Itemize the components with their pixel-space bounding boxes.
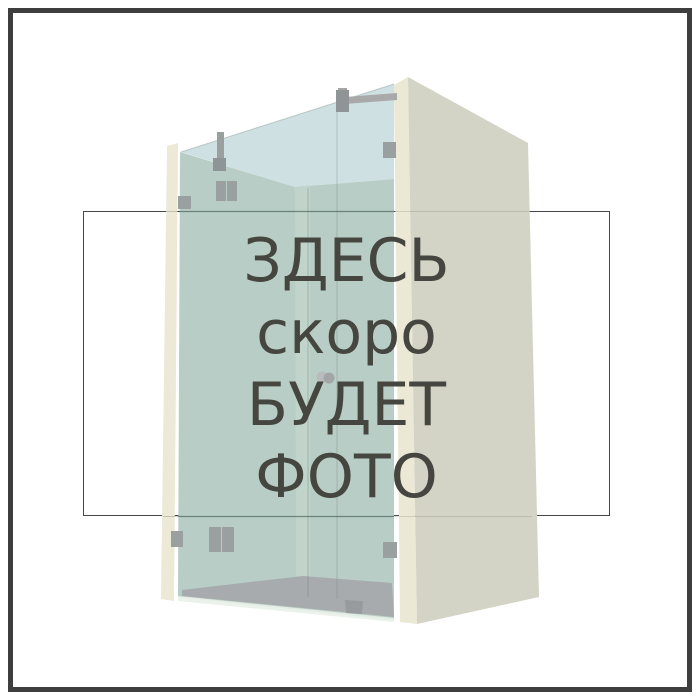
wall-clamp-bottom-right bbox=[383, 542, 397, 558]
wall-clamp-top-right bbox=[383, 142, 396, 158]
double-clamp-top-b bbox=[227, 181, 237, 201]
double-clamp-bottom-b bbox=[222, 527, 234, 552]
placeholder-line: БУДЕТ bbox=[83, 369, 610, 441]
post-clamp bbox=[213, 158, 226, 171]
placeholder-text: ЗДЕСЬ скоро БУДЕТ ФОТО bbox=[83, 225, 610, 513]
placeholder-line: ЗДЕСЬ bbox=[83, 225, 610, 297]
placeholder-line: ФОТО bbox=[83, 441, 610, 513]
wall-clamp-bottom-left bbox=[171, 531, 183, 547]
floor-fitting bbox=[345, 600, 363, 614]
placeholder-line: скоро bbox=[83, 297, 610, 369]
support-bar-bracket bbox=[336, 90, 349, 112]
product-photo-placeholder: ЗДЕСЬ скоро БУДЕТ ФОТО bbox=[0, 0, 700, 700]
wall-clamp-top-left bbox=[178, 196, 191, 209]
double-clamp-bottom-a bbox=[209, 527, 221, 552]
double-clamp-top-a bbox=[216, 181, 226, 201]
